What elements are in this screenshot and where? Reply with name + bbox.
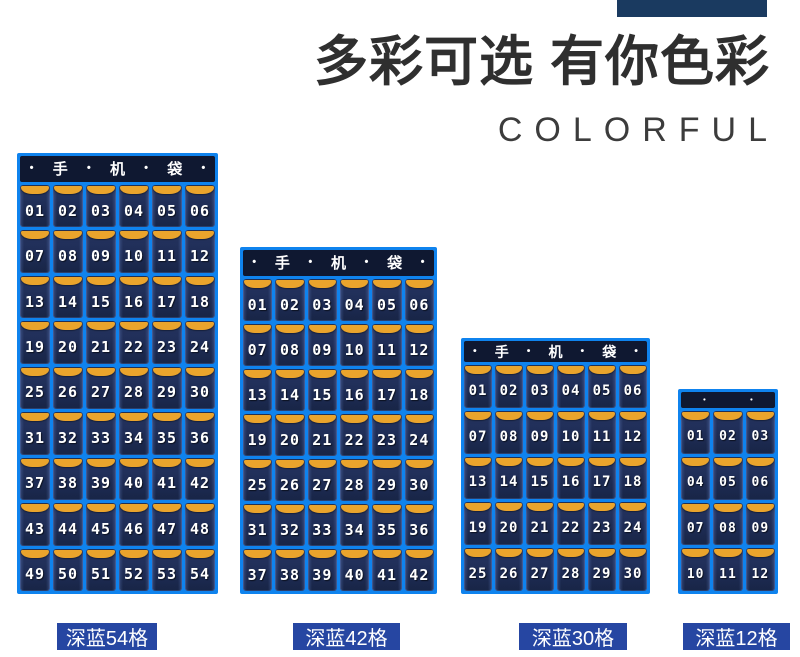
pocket-cell: 16 <box>340 369 369 411</box>
pocket-grid: 010203040506070809101112 <box>681 411 775 591</box>
pocket-cell: 09 <box>308 324 337 366</box>
header-character: 手 <box>495 345 509 359</box>
pocket-cell: 15 <box>308 369 337 411</box>
pocket-number: 15 <box>312 386 332 404</box>
pocket-number: 03 <box>91 202 111 220</box>
pocket-cell: 30 <box>619 548 647 591</box>
page-title: 多彩可选 有你色彩 <box>314 34 770 91</box>
pocket-cell: 21 <box>86 321 116 363</box>
pocket-number: 18 <box>409 386 429 404</box>
pocket-number: 27 <box>91 383 111 401</box>
pocket-number: 29 <box>593 566 612 582</box>
pocket-number: 12 <box>190 247 210 265</box>
header-character: 手 <box>275 256 290 271</box>
pocket-number: 21 <box>531 520 550 536</box>
pocket-number: 22 <box>345 431 365 449</box>
pocket-number: 04 <box>345 296 365 314</box>
pocket-cell: 11 <box>588 411 616 454</box>
pocket-cell: 48 <box>185 503 215 545</box>
pocket-number: 23 <box>377 431 397 449</box>
header-dot-icon: • <box>473 346 477 357</box>
pocket-number: 13 <box>469 474 488 490</box>
pocket-number: 40 <box>124 474 144 492</box>
pocket-number: 43 <box>25 520 45 538</box>
pocket-cell: 40 <box>340 549 369 591</box>
pocket-cell: 41 <box>152 458 182 500</box>
pocket-cell: 15 <box>526 457 554 500</box>
pocket-cell: 23 <box>588 502 616 545</box>
header-dot-icon: • <box>30 163 34 174</box>
pocket-number: 10 <box>124 247 144 265</box>
pocket-cell: 12 <box>746 548 775 591</box>
pocket-cell: 03 <box>86 185 116 227</box>
pocket-cell: 04 <box>340 279 369 321</box>
header-character: 机 <box>110 162 125 177</box>
pocket-cell: 43 <box>20 503 50 545</box>
pocket-number: 44 <box>58 520 78 538</box>
pocket-number: 33 <box>91 429 111 447</box>
pocket-number: 48 <box>190 520 210 538</box>
pocket-cell: 09 <box>746 503 775 546</box>
pocket-number: 25 <box>25 383 45 401</box>
pocket-cell: 34 <box>340 504 369 546</box>
pocket-cell: 04 <box>681 457 710 500</box>
pocket-number: 09 <box>752 521 770 536</box>
header-dot-icon: • <box>87 163 91 174</box>
pocket-number: 06 <box>409 296 429 314</box>
pocket-cell: 19 <box>20 321 50 363</box>
top-accent-bar <box>617 0 767 17</box>
pocket-number: 12 <box>624 429 643 445</box>
pocket-cell: 31 <box>20 412 50 454</box>
pocket-cell: 09 <box>86 230 116 272</box>
pocket-cell: 29 <box>372 459 401 501</box>
header-character: 袋 <box>602 345 616 359</box>
pocket-number: 20 <box>58 338 78 356</box>
pocket-cell: 42 <box>405 549 434 591</box>
pocket-number: 38 <box>280 566 300 584</box>
pocket-cell: 05 <box>588 365 616 408</box>
pocket-number: 31 <box>248 521 268 539</box>
pocket-number: 03 <box>752 429 770 444</box>
pocket-cell: 35 <box>372 504 401 546</box>
pocket-number: 18 <box>190 293 210 311</box>
pocket-number: 12 <box>409 341 429 359</box>
size-label-30: 深蓝30格 <box>519 623 627 650</box>
pocket-number: 08 <box>719 521 737 536</box>
organizer-header: •手•机•袋• <box>243 250 434 276</box>
pocket-number: 42 <box>409 566 429 584</box>
pocket-number: 25 <box>248 476 268 494</box>
pocket-number: 53 <box>157 565 177 583</box>
pocket-cell: 20 <box>495 502 523 545</box>
pocket-number: 24 <box>190 338 210 356</box>
pocket-cell: 30 <box>405 459 434 501</box>
header-dot-icon: • <box>750 396 753 404</box>
pocket-number: 19 <box>248 431 268 449</box>
pocket-number: 28 <box>345 476 365 494</box>
pocket-number: 05 <box>157 202 177 220</box>
pocket-number: 08 <box>58 247 78 265</box>
pocket-cell: 16 <box>557 457 585 500</box>
pocket-number: 37 <box>25 474 45 492</box>
organizer-42-pockets: •手•机•袋•010203040506070809101112131415161… <box>240 247 437 594</box>
pocket-number: 30 <box>624 566 643 582</box>
pocket-cell: 22 <box>119 321 149 363</box>
pocket-number: 11 <box>593 429 612 445</box>
pocket-cell: 17 <box>372 369 401 411</box>
pocket-number: 35 <box>157 429 177 447</box>
pocket-cell: 27 <box>526 548 554 591</box>
pocket-number: 52 <box>124 565 144 583</box>
pocket-cell: 36 <box>405 504 434 546</box>
pocket-number: 26 <box>500 566 519 582</box>
pocket-number: 38 <box>58 474 78 492</box>
pocket-number: 37 <box>248 566 268 584</box>
pocket-cell: 06 <box>746 457 775 500</box>
pocket-cell: 13 <box>20 276 50 318</box>
size-label-12: 深蓝12格 <box>683 623 790 650</box>
pocket-cell: 37 <box>20 458 50 500</box>
pocket-number: 32 <box>280 521 300 539</box>
pocket-cell: 13 <box>243 369 272 411</box>
pocket-cell: 10 <box>119 230 149 272</box>
pocket-cell: 40 <box>119 458 149 500</box>
header-character: 手 <box>53 162 68 177</box>
pocket-cell: 15 <box>86 276 116 318</box>
pocket-number: 32 <box>58 429 78 447</box>
pocket-cell: 36 <box>185 412 215 454</box>
pocket-number: 39 <box>312 566 332 584</box>
pocket-number: 22 <box>124 338 144 356</box>
pocket-number: 41 <box>157 474 177 492</box>
pocket-number: 21 <box>91 338 111 356</box>
pocket-cell: 10 <box>557 411 585 454</box>
pocket-number: 17 <box>377 386 397 404</box>
pocket-number: 12 <box>752 567 770 582</box>
pocket-number: 11 <box>377 341 397 359</box>
organizer-30-pockets: •手•机•袋•010203040506070809101112131415161… <box>461 338 650 594</box>
pocket-cell: 28 <box>119 367 149 409</box>
pocket-cell: 07 <box>464 411 492 454</box>
pocket-number: 07 <box>248 341 268 359</box>
pocket-cell: 24 <box>185 321 215 363</box>
header-character: 机 <box>331 256 346 271</box>
pocket-cell: 01 <box>464 365 492 408</box>
pocket-cell: 52 <box>119 549 149 591</box>
header-dot-icon: • <box>421 257 425 268</box>
pocket-grid: 0102030405060708091011121314151617181920… <box>464 365 647 591</box>
pocket-number: 03 <box>312 296 332 314</box>
pocket-number: 29 <box>377 476 397 494</box>
pocket-cell: 35 <box>152 412 182 454</box>
pocket-cell: 04 <box>557 365 585 408</box>
pocket-cell: 06 <box>405 279 434 321</box>
pocket-number: 07 <box>687 521 705 536</box>
pocket-cell: 28 <box>557 548 585 591</box>
pocket-cell: 01 <box>243 279 272 321</box>
pocket-number: 40 <box>345 566 365 584</box>
pocket-number: 26 <box>58 383 78 401</box>
pocket-number: 14 <box>280 386 300 404</box>
pocket-cell: 51 <box>86 549 116 591</box>
pocket-grid: 0102030405060708091011121314151617181920… <box>243 279 434 591</box>
pocket-cell: 26 <box>53 367 83 409</box>
pocket-number: 08 <box>500 429 519 445</box>
pocket-number: 03 <box>531 383 550 399</box>
pocket-cell: 27 <box>86 367 116 409</box>
header-dot-icon: • <box>581 346 585 357</box>
pocket-cell: 29 <box>152 367 182 409</box>
pocket-number: 22 <box>562 520 581 536</box>
pocket-number: 09 <box>531 429 550 445</box>
pocket-cell: 01 <box>20 185 50 227</box>
pocket-cell: 16 <box>119 276 149 318</box>
pocket-cell: 18 <box>185 276 215 318</box>
pocket-cell: 25 <box>464 548 492 591</box>
pocket-cell: 12 <box>619 411 647 454</box>
pocket-number: 29 <box>157 383 177 401</box>
pocket-cell: 08 <box>53 230 83 272</box>
pocket-number: 01 <box>25 202 45 220</box>
pocket-number: 11 <box>157 247 177 265</box>
pocket-cell: 02 <box>713 411 742 454</box>
pocket-cell: 17 <box>152 276 182 318</box>
header-dot-icon: • <box>703 396 706 404</box>
pocket-number: 06 <box>624 383 643 399</box>
pocket-cell: 26 <box>275 459 304 501</box>
pocket-number: 47 <box>157 520 177 538</box>
header-dot-icon: • <box>308 257 312 268</box>
pocket-cell: 47 <box>152 503 182 545</box>
pocket-cell: 24 <box>619 502 647 545</box>
header-dot-icon: • <box>252 257 256 268</box>
pocket-cell: 05 <box>372 279 401 321</box>
pocket-cell: 38 <box>53 458 83 500</box>
pocket-number: 04 <box>124 202 144 220</box>
pocket-number: 21 <box>312 431 332 449</box>
pocket-cell: 42 <box>185 458 215 500</box>
pocket-number: 35 <box>377 521 397 539</box>
pocket-number: 41 <box>377 566 397 584</box>
pocket-cell: 53 <box>152 549 182 591</box>
pocket-cell: 06 <box>185 185 215 227</box>
pocket-cell: 25 <box>20 367 50 409</box>
pocket-cell: 26 <box>495 548 523 591</box>
pocket-number: 05 <box>377 296 397 314</box>
pocket-cell: 33 <box>308 504 337 546</box>
pocket-number: 11 <box>719 567 737 582</box>
promo-banner: 多彩可选 有你色彩 COLORFUL •手•机•袋•01020304050607… <box>0 0 800 657</box>
pocket-cell: 38 <box>275 549 304 591</box>
pocket-cell: 20 <box>53 321 83 363</box>
pocket-number: 51 <box>91 565 111 583</box>
pocket-number: 02 <box>500 383 519 399</box>
pocket-cell: 07 <box>681 503 710 546</box>
organizer-header: •手•机•袋• <box>20 156 215 182</box>
pocket-cell: 18 <box>619 457 647 500</box>
pocket-number: 19 <box>25 338 45 356</box>
pocket-cell: 09 <box>526 411 554 454</box>
pocket-number: 08 <box>280 341 300 359</box>
pocket-cell: 34 <box>119 412 149 454</box>
pocket-number: 07 <box>25 247 45 265</box>
pocket-cell: 02 <box>495 365 523 408</box>
pocket-cell: 24 <box>405 414 434 456</box>
pocket-cell: 45 <box>86 503 116 545</box>
pocket-cell: 05 <box>152 185 182 227</box>
pocket-cell: 12 <box>185 230 215 272</box>
pocket-cell: 27 <box>308 459 337 501</box>
pocket-number: 54 <box>190 565 210 583</box>
page-subtitle: COLORFUL <box>498 111 779 150</box>
pocket-number: 15 <box>91 293 111 311</box>
pocket-cell: 17 <box>588 457 616 500</box>
pocket-number: 25 <box>469 566 488 582</box>
pocket-number: 04 <box>687 475 705 490</box>
pocket-number: 28 <box>562 566 581 582</box>
pocket-number: 33 <box>312 521 332 539</box>
pocket-cell: 39 <box>308 549 337 591</box>
pocket-cell: 46 <box>119 503 149 545</box>
pocket-cell: 12 <box>405 324 434 366</box>
pocket-cell: 49 <box>20 549 50 591</box>
pocket-number: 34 <box>124 429 144 447</box>
pocket-number: 46 <box>124 520 144 538</box>
header-character: 机 <box>548 345 562 359</box>
pocket-number: 14 <box>58 293 78 311</box>
pocket-cell: 02 <box>53 185 83 227</box>
pocket-cell: 28 <box>340 459 369 501</box>
organizer-header: •手•机•袋• <box>464 341 647 362</box>
pocket-cell: 03 <box>746 411 775 454</box>
pocket-number: 10 <box>687 567 705 582</box>
pocket-cell: 11 <box>372 324 401 366</box>
pocket-cell: 10 <box>340 324 369 366</box>
size-label-54: 深蓝54格 <box>57 623 157 650</box>
pocket-number: 01 <box>469 383 488 399</box>
pocket-number: 20 <box>280 431 300 449</box>
pocket-cell: 30 <box>185 367 215 409</box>
pocket-number: 02 <box>719 429 737 444</box>
pocket-cell: 22 <box>340 414 369 456</box>
pocket-cell: 19 <box>464 502 492 545</box>
pocket-number: 49 <box>25 565 45 583</box>
pocket-number: 04 <box>562 383 581 399</box>
pocket-cell: 11 <box>152 230 182 272</box>
pocket-number: 10 <box>345 341 365 359</box>
pocket-cell: 08 <box>495 411 523 454</box>
pocket-number: 30 <box>409 476 429 494</box>
pocket-number: 09 <box>312 341 332 359</box>
pocket-cell: 03 <box>308 279 337 321</box>
organizer-header: •• <box>681 392 775 408</box>
header-dot-icon: • <box>634 346 638 357</box>
pocket-number: 17 <box>157 293 177 311</box>
pocket-cell: 03 <box>526 365 554 408</box>
pocket-number: 42 <box>190 474 210 492</box>
size-label-42: 深蓝42格 <box>293 623 400 650</box>
pocket-number: 39 <box>91 474 111 492</box>
pocket-number: 19 <box>469 520 488 536</box>
header-dot-icon: • <box>365 257 369 268</box>
pocket-number: 24 <box>624 520 643 536</box>
pocket-number: 05 <box>593 383 612 399</box>
pocket-number: 09 <box>91 247 111 265</box>
pocket-cell: 44 <box>53 503 83 545</box>
pocket-number: 26 <box>280 476 300 494</box>
pocket-number: 36 <box>409 521 429 539</box>
pocket-cell: 37 <box>243 549 272 591</box>
pocket-cell: 05 <box>713 457 742 500</box>
pocket-number: 28 <box>124 383 144 401</box>
pocket-number: 16 <box>562 474 581 490</box>
pocket-number: 30 <box>190 383 210 401</box>
pocket-cell: 07 <box>243 324 272 366</box>
pocket-cell: 18 <box>405 369 434 411</box>
pocket-number: 36 <box>190 429 210 447</box>
pocket-number: 05 <box>719 475 737 490</box>
pocket-cell: 07 <box>20 230 50 272</box>
pocket-cell: 01 <box>681 411 710 454</box>
pocket-number: 10 <box>562 429 581 445</box>
pocket-cell: 23 <box>152 321 182 363</box>
header-character: 袋 <box>167 162 182 177</box>
pocket-cell: 21 <box>308 414 337 456</box>
pocket-cell: 08 <box>713 503 742 546</box>
pocket-number: 14 <box>500 474 519 490</box>
pocket-cell: 19 <box>243 414 272 456</box>
pocket-cell: 39 <box>86 458 116 500</box>
header-dot-icon: • <box>527 346 531 357</box>
pocket-number: 15 <box>531 474 550 490</box>
pocket-number: 23 <box>157 338 177 356</box>
pocket-number: 06 <box>752 475 770 490</box>
header-character: 袋 <box>387 256 402 271</box>
pocket-cell: 10 <box>681 548 710 591</box>
pocket-cell: 04 <box>119 185 149 227</box>
pocket-number: 27 <box>312 476 332 494</box>
pocket-number: 02 <box>280 296 300 314</box>
pocket-number: 50 <box>58 565 78 583</box>
pocket-number: 45 <box>91 520 111 538</box>
pocket-number: 17 <box>593 474 612 490</box>
pocket-number: 02 <box>58 202 78 220</box>
pocket-cell: 31 <box>243 504 272 546</box>
organizer-54-pockets: •手•机•袋•010203040506070809101112131415161… <box>17 153 218 594</box>
pocket-cell: 29 <box>588 548 616 591</box>
pocket-number: 13 <box>25 293 45 311</box>
pocket-cell: 25 <box>243 459 272 501</box>
pocket-number: 23 <box>593 520 612 536</box>
pocket-number: 07 <box>469 429 488 445</box>
pocket-grid: 0102030405060708091011121314151617181920… <box>20 185 215 591</box>
pocket-number: 16 <box>345 386 365 404</box>
pocket-cell: 50 <box>53 549 83 591</box>
pocket-number: 20 <box>500 520 519 536</box>
pocket-cell: 14 <box>495 457 523 500</box>
pocket-cell: 02 <box>275 279 304 321</box>
pocket-cell: 21 <box>526 502 554 545</box>
pocket-cell: 11 <box>713 548 742 591</box>
pocket-cell: 08 <box>275 324 304 366</box>
pocket-number: 34 <box>345 521 365 539</box>
pocket-cell: 14 <box>275 369 304 411</box>
pocket-cell: 54 <box>185 549 215 591</box>
pocket-cell: 33 <box>86 412 116 454</box>
pocket-cell: 14 <box>53 276 83 318</box>
pocket-number: 18 <box>624 474 643 490</box>
